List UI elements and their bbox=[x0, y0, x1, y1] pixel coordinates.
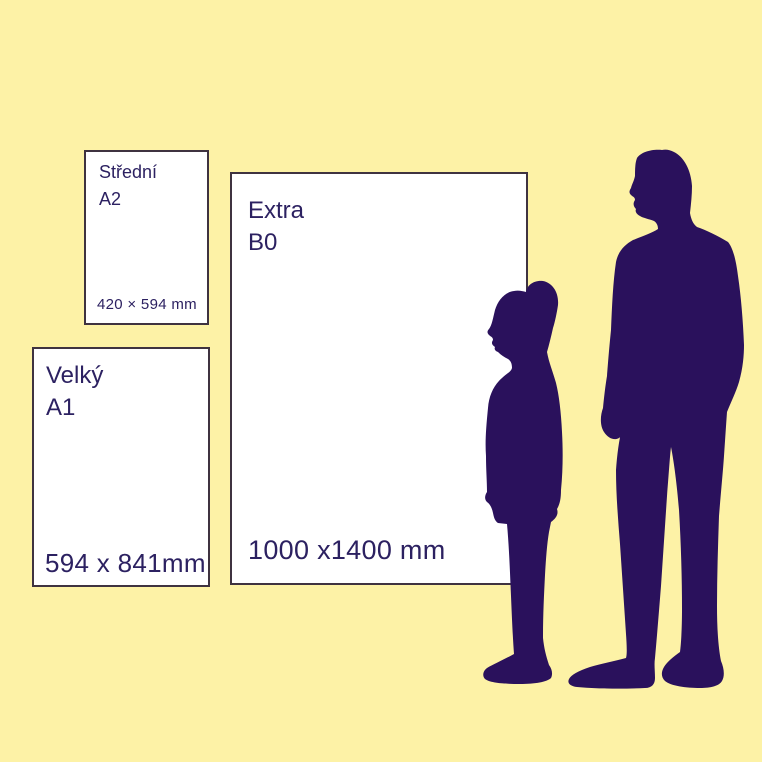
man-silhouette bbox=[568, 150, 744, 689]
poster-size-comparison-infographic: Střední A2 420 × 594 mm Velký A1 594 x 8… bbox=[0, 0, 762, 764]
girl-silhouette bbox=[483, 281, 562, 684]
human-silhouettes bbox=[0, 0, 762, 764]
